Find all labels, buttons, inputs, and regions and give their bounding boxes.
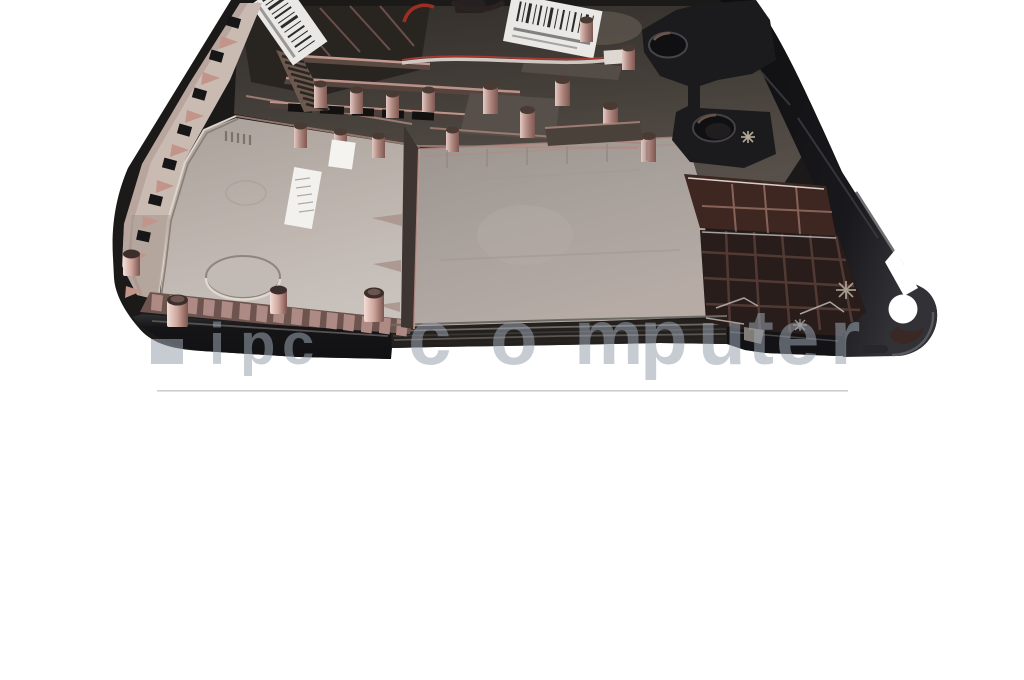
svg-text:r: r <box>830 293 860 381</box>
svg-text:c: c <box>282 312 314 377</box>
svg-text:p: p <box>640 293 688 381</box>
svg-text:u: u <box>698 293 746 381</box>
svg-text:e: e <box>776 293 819 381</box>
svg-text:c: c <box>408 293 451 381</box>
svg-text:m: m <box>574 293 643 381</box>
svg-text:t: t <box>748 293 774 381</box>
svg-text:o: o <box>490 293 538 381</box>
svg-text:i: i <box>209 312 225 377</box>
svg-text:p: p <box>240 312 275 377</box>
